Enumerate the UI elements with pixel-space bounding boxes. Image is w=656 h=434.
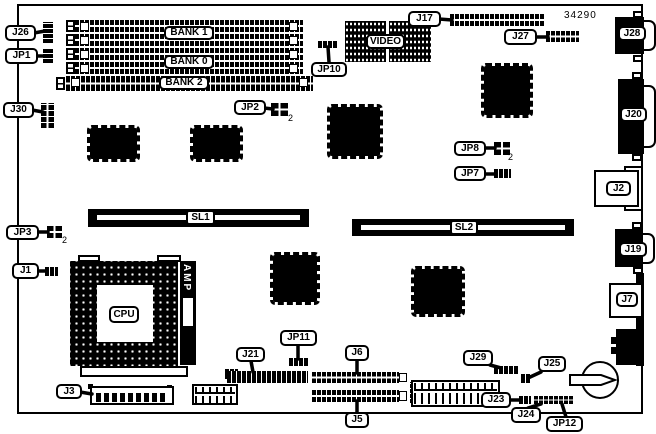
j3-pin-row: [96, 393, 168, 402]
jp2-pin2-annotation: 2: [288, 114, 293, 123]
cpu-socket-tab: [78, 255, 100, 262]
j28-label: J28: [618, 26, 646, 41]
bank1-label: BANK 1: [164, 26, 214, 40]
qfp-chip: [481, 63, 533, 118]
amp-module-label: AMP: [181, 264, 192, 292]
motherboard-diagram: BANK 1 BANK 0 BANK 2 J26 JP1 J30 JP3 2 J…: [0, 0, 656, 434]
j21-header: [227, 371, 308, 383]
j19-screw-tab: [633, 267, 643, 274]
jp8-label: JP8: [454, 141, 486, 156]
j29-label: J29: [463, 350, 493, 366]
audio-jack-block: [616, 329, 643, 365]
j24-label: J24: [511, 407, 541, 423]
keyboard-power-pins-bottom: [195, 396, 235, 403]
amp-module-window: [182, 297, 194, 327]
qfp-chip: [190, 125, 243, 162]
j27-label: J27: [504, 29, 537, 45]
bank2-label: BANK 2: [159, 76, 209, 90]
jp7-label: JP7: [454, 166, 486, 181]
jp3-label: JP3: [6, 225, 39, 240]
video-label: VIDEO: [366, 34, 405, 49]
j28-screw-tab: [633, 55, 643, 62]
j3-label: J3: [56, 384, 82, 399]
jp12-header: [554, 396, 573, 404]
j7-label: J7: [616, 292, 638, 307]
cpu-label: CPU: [109, 306, 139, 323]
j28-screw-tab: [633, 11, 643, 18]
j21-label: J21: [236, 347, 265, 362]
j25-jumper: [521, 374, 531, 383]
j19-label: J19: [619, 242, 647, 257]
jp2-label: JP2: [234, 100, 266, 115]
jp3-pin2-annotation: 2: [62, 236, 67, 245]
j20-screw-tab: [632, 154, 642, 161]
j6-label: J6: [345, 345, 369, 361]
qfp-chip: [87, 125, 140, 162]
qfp-chip: [411, 266, 465, 317]
j29-header: [494, 366, 518, 374]
j26-label: J26: [5, 25, 36, 41]
dimm-slot-endcap: [56, 77, 65, 90]
j19-screw-tab: [632, 222, 642, 229]
cpu-socket-tab: [157, 255, 181, 262]
keyboard-power-pins-top: [195, 387, 235, 394]
j6-header: [312, 372, 399, 383]
jp1-label: JP1: [5, 48, 38, 64]
j1-label: J1: [12, 263, 39, 279]
jp10-label: JP10: [311, 62, 347, 77]
jp10-jumper: [318, 41, 338, 48]
j5-label: J5: [345, 412, 369, 428]
at-power-pins-top: [414, 383, 497, 391]
sl2-label: SL2: [450, 220, 478, 235]
qfp-chip: [327, 104, 383, 159]
j20-screw-tab: [632, 72, 642, 79]
audio-jack-tab: [611, 337, 617, 344]
qfp-chip: [270, 252, 320, 305]
j24-header: [534, 396, 553, 404]
j6-endcap: [399, 373, 407, 382]
j17-label: J17: [408, 11, 441, 27]
j20-label: J20: [620, 107, 647, 122]
jp3-jumper: [47, 226, 62, 238]
jp12-label: JP12: [546, 416, 583, 432]
simm-slot-endcap: [66, 34, 75, 46]
j1-jumper: [45, 267, 58, 276]
jp8-pin2-annotation: 2: [508, 153, 513, 162]
j25-label: J25: [538, 356, 566, 372]
simm-slot-endcap: [66, 48, 75, 60]
j23-jumper: [519, 396, 531, 404]
jp11-jumper: [289, 358, 308, 366]
j26-jumper: [43, 22, 53, 43]
jp7-jumper: [494, 169, 511, 178]
j30-label: J30: [3, 102, 34, 118]
j5-header: [312, 390, 399, 402]
j23-label: J23: [481, 392, 511, 408]
bank0-label: BANK 0: [164, 55, 214, 69]
simm-slot-endcap: [66, 20, 75, 32]
cpu-socket-lever: [80, 366, 188, 377]
j5-endcap: [399, 391, 407, 401]
jp2-jumper: [271, 103, 288, 116]
j2-label: J2: [606, 181, 631, 196]
j30-header: [41, 103, 54, 128]
sl1-label: SL1: [186, 210, 215, 225]
jp1-jumper: [43, 49, 53, 63]
part-number: 34290: [564, 11, 597, 21]
coin-battery: [581, 361, 619, 399]
j17-header: [450, 14, 545, 26]
j27-header: [546, 31, 579, 42]
jp11-label: JP11: [280, 330, 317, 346]
simm-slot-endcap: [66, 62, 75, 74]
audio-jack-tab: [611, 347, 617, 354]
